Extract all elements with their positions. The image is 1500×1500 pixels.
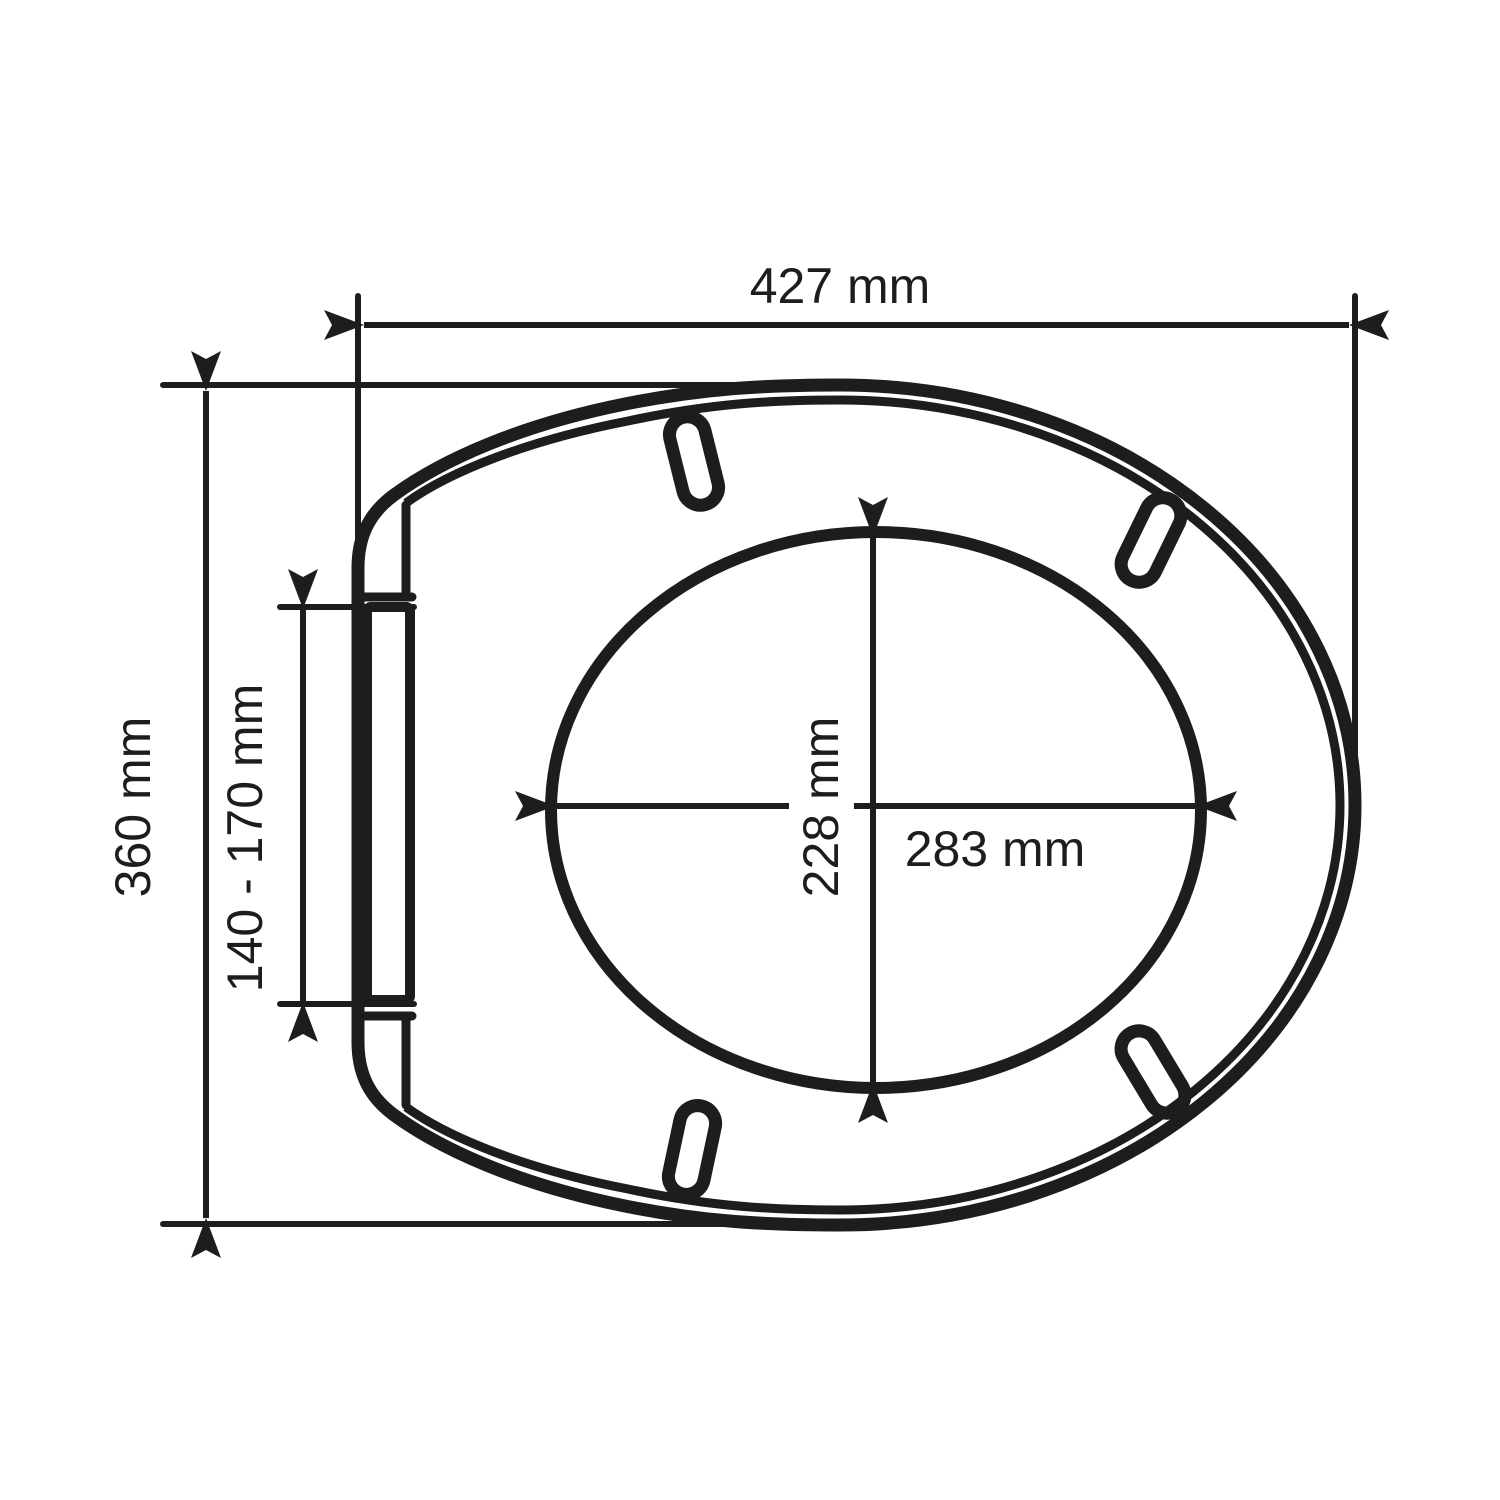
label-overall-depth: 360 mm [105,717,161,898]
label-hinge-range: 140 - 170 mm [217,684,273,992]
label-opening-width: 283 mm [905,821,1086,877]
hinge-bar [367,607,410,1000]
toilet-seat-dimension-diagram: 427 mm 360 mm 140 - 170 mm 228 mm 283 mm [0,0,1500,1500]
diagram-page: 427 mm 360 mm 140 - 170 mm 228 mm 283 mm [0,0,1500,1500]
label-overall-width: 427 mm [750,258,931,314]
label-opening-depth: 228 mm [793,717,849,898]
